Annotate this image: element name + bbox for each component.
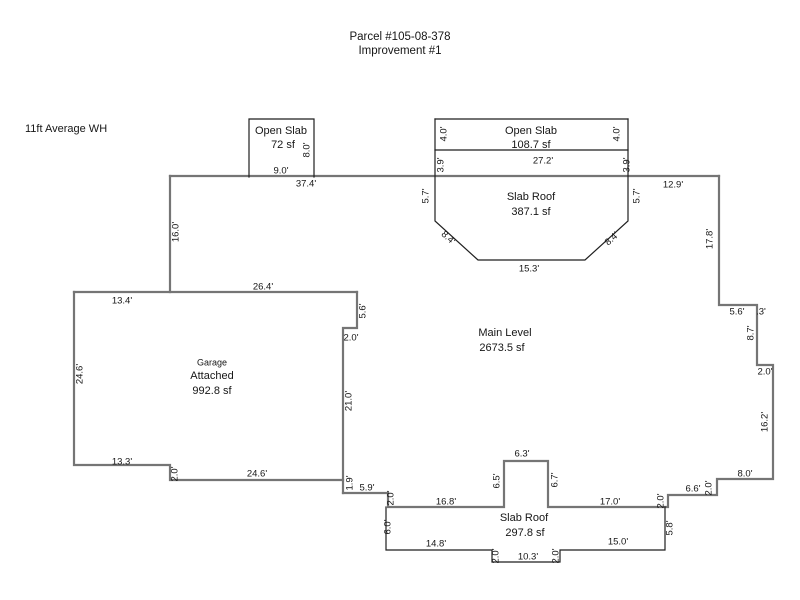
dimension-label: .3'	[756, 307, 766, 318]
dimension-label: 8.0'	[302, 142, 313, 157]
dimension-label: 6.7'	[550, 472, 561, 487]
room-area: 108.7 sf	[511, 139, 551, 151]
room-name: Slab Roof	[507, 191, 556, 203]
dimension-label: 5.9'	[359, 483, 374, 494]
dimension-label: 27.2'	[533, 156, 553, 167]
wall-segment	[343, 176, 773, 507]
dimension-label: 3.9'	[622, 157, 633, 172]
dimension-label: 16.2'	[760, 412, 771, 432]
dimension-label: 8.0'	[737, 469, 752, 480]
dimension-label: 8.7'	[746, 325, 757, 340]
room-name: Open Slab	[505, 125, 557, 137]
dimension-label: 15.0'	[608, 537, 628, 548]
dimension-label: 4.0'	[439, 126, 450, 141]
dimension-label: 5.7'	[632, 188, 643, 203]
dimension-label: 13.3'	[112, 457, 132, 468]
dimension-label: 10.3'	[518, 552, 538, 563]
dimension-label: 6.6'	[685, 484, 700, 495]
dimension-label: 24.6'	[75, 364, 86, 384]
dimension-label: 2.0'	[170, 466, 181, 481]
room-name: Attached	[190, 370, 233, 382]
dimension-label: 24.6'	[247, 469, 267, 480]
room-name: Main Level	[478, 327, 531, 339]
dimension-label: 12.9'	[663, 180, 683, 191]
dimension-label: 9.0'	[273, 166, 288, 177]
dimension-label: 8.4'	[439, 229, 458, 247]
dimension-label: 2.0'	[551, 548, 562, 563]
dimension-label: 6.5'	[492, 473, 503, 488]
room-name: Slab Roof	[500, 512, 549, 524]
dimension-label: 2.0'	[656, 493, 667, 508]
room-area: 2673.5 sf	[479, 342, 525, 354]
dimension-label: 2.0'	[704, 480, 715, 495]
dimension-label: 13.4'	[112, 296, 132, 307]
dimension-label: 8.4'	[603, 230, 622, 248]
dimension-label: 16.8'	[436, 497, 456, 508]
dimension-label: 5.6'	[358, 303, 369, 318]
dimension-label: 21.0'	[344, 391, 355, 411]
floor-plan-svg: Open Slab72 sfOpen Slab108.7 sfSlab Roof…	[0, 0, 800, 600]
room-name: Open Slab	[255, 125, 307, 137]
dimension-label: 5.6'	[729, 307, 744, 318]
dimension-label: 5.8'	[665, 520, 676, 535]
room-area: 297.8 sf	[505, 527, 545, 539]
dimension-label: 1.9'	[345, 475, 356, 490]
room-area: 992.8 sf	[192, 385, 232, 397]
dimension-label: 2.0'	[491, 548, 502, 563]
dimension-label: 17.8'	[705, 229, 716, 249]
dimension-label: 2.0'	[757, 367, 772, 378]
room-area: 72 sf	[271, 139, 296, 151]
room-area: 387.1 sf	[511, 206, 551, 218]
dimension-label: 2.0'	[386, 490, 397, 505]
room-name: Garage	[197, 357, 227, 367]
dimension-label: 26.4'	[253, 282, 273, 293]
dimension-label: 5.7'	[421, 188, 432, 203]
dimension-label: 6.0'	[383, 519, 394, 534]
dimension-label: 14.8'	[426, 539, 446, 550]
dimension-label: 3.9'	[436, 157, 447, 172]
dimension-label: 16.0'	[171, 222, 182, 242]
dimension-label: 4.0'	[612, 126, 623, 141]
dimension-label: 17.0'	[600, 497, 620, 508]
dimension-label: 15.3'	[519, 264, 539, 275]
dimension-label: 37.4'	[296, 179, 316, 190]
dimension-label: 6.3'	[514, 449, 529, 460]
dimension-label: 2.0'	[343, 333, 358, 344]
